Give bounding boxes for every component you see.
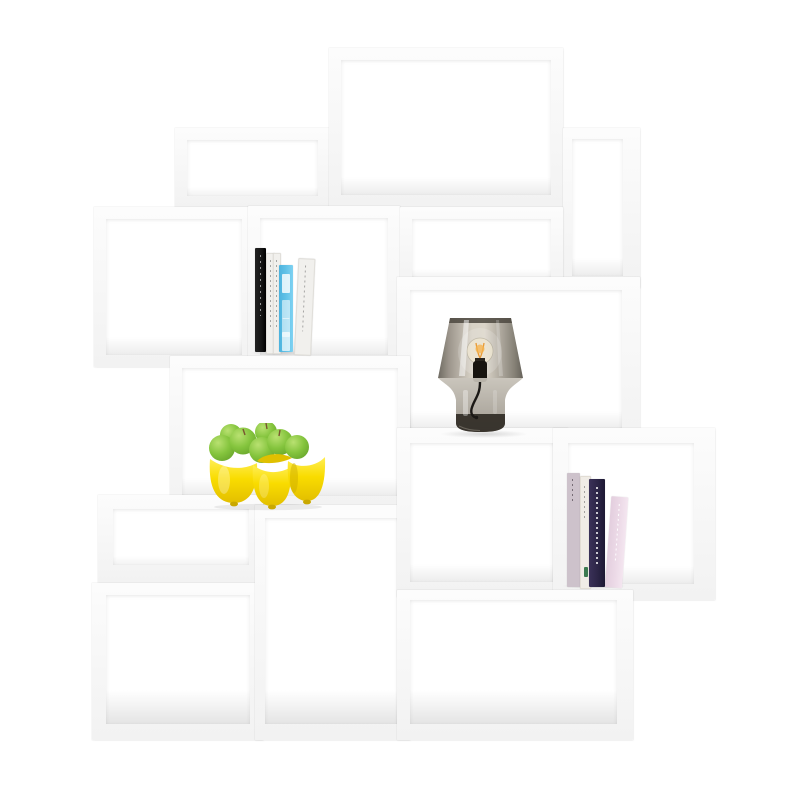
bowl-graphic	[209, 423, 325, 510]
shelf-box-bottom-left	[92, 583, 263, 740]
shelf-cavity	[341, 60, 551, 195]
shelf-cavity	[106, 595, 250, 724]
left-books	[253, 245, 307, 355]
shelf-cavity	[410, 600, 617, 724]
book-mauve	[567, 473, 580, 587]
book-pink-leaning	[605, 496, 628, 588]
shelf-box-top-large	[329, 48, 563, 207]
shelf-box-bottom-mid	[255, 505, 410, 740]
table-lamp	[433, 312, 528, 437]
book-black	[255, 248, 266, 352]
shelf-cavity	[106, 219, 242, 355]
shelf-box-left-square	[94, 207, 254, 367]
shelf-cavity	[412, 219, 551, 278]
product-photo-stage	[0, 0, 800, 800]
shelf-box-upper-left	[175, 128, 330, 208]
right-books	[565, 470, 625, 588]
shelf-cavity	[187, 140, 318, 196]
book-dark-purple	[589, 479, 605, 587]
lamp-graphic	[438, 318, 523, 432]
shelf-box-books-row-mid	[397, 428, 568, 597]
fruit-bowl	[202, 423, 334, 511]
shelf-cavity	[113, 509, 249, 565]
shelf-cavity	[410, 443, 553, 582]
shelf-cavity	[572, 139, 623, 276]
book-blue	[279, 265, 293, 352]
shelf-cavity	[265, 518, 398, 724]
shelf-box-narrow-right	[563, 128, 640, 288]
shelf-box-bottom-right	[397, 590, 633, 740]
